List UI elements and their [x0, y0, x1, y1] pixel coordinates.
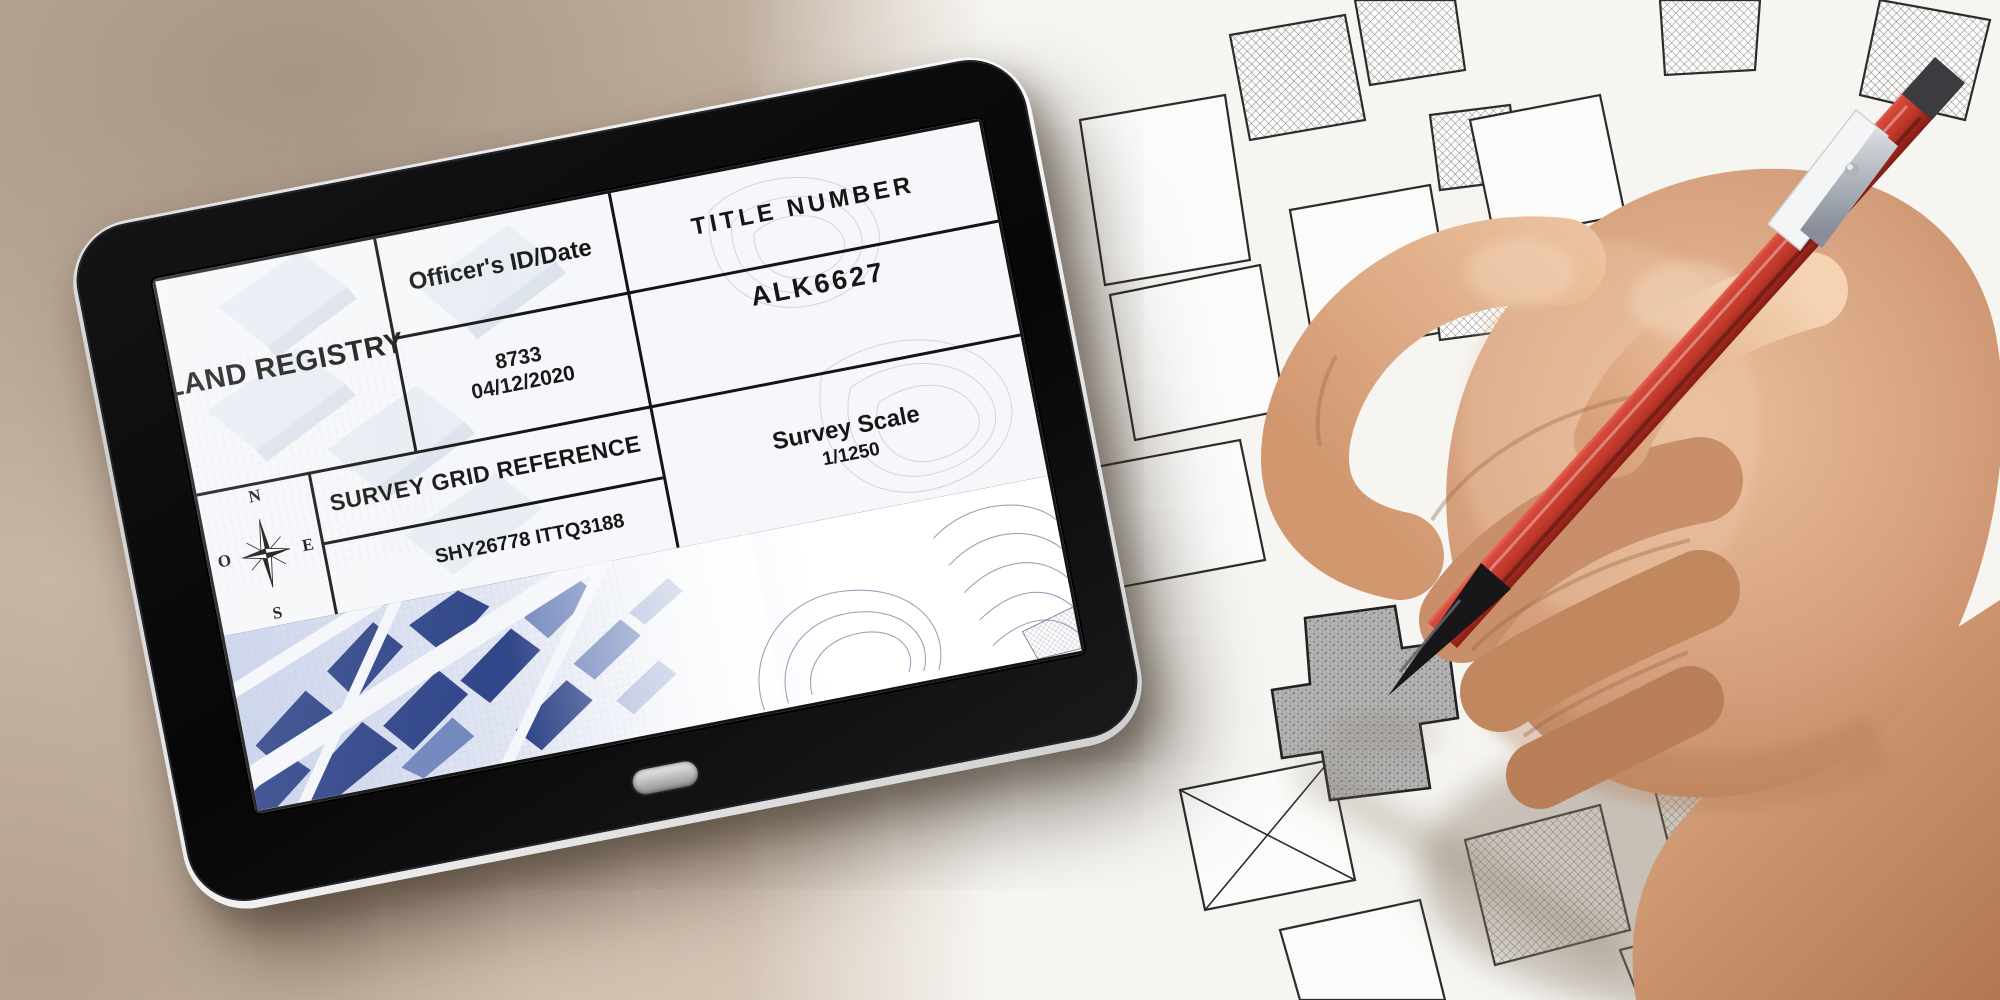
- hand-with-pencil: [0, 0, 2000, 1000]
- hand: [1305, 169, 2000, 1000]
- scene-photo: LAND REGISTRY Officer's ID/Date 8733 04/…: [0, 0, 2000, 1000]
